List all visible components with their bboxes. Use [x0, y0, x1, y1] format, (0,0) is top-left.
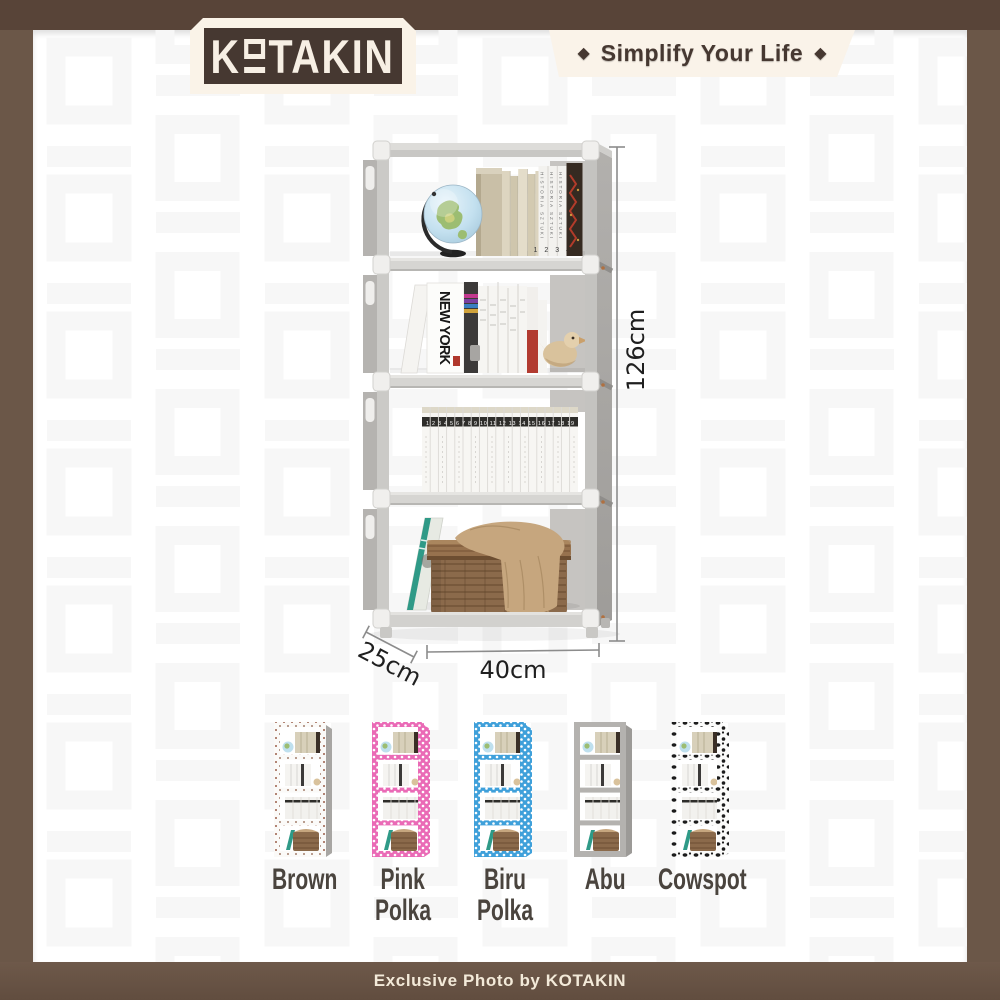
brand-logo-plate: KTAKIN: [190, 18, 416, 94]
logo-prefix: K: [211, 33, 241, 80]
variant-label-cowspot: Cowspot: [632, 864, 772, 895]
diamond-icon: ◆: [814, 46, 826, 62]
variant-thumb-pink-polka: [372, 720, 434, 860]
brand-logo-box: KTAKIN: [204, 28, 402, 84]
logo-suffix: TAKIN: [269, 33, 395, 80]
variant-thumb-cowspot: [671, 720, 733, 860]
product-banner: KTAKIN ◆ Simplify Your Life ◆: [0, 0, 1000, 1000]
tagline-text: Simplify Your Life: [601, 40, 803, 67]
footer-credit: Exclusive Photo by KOTAKIN: [374, 971, 626, 991]
variant-thumb-biru-polka: [474, 720, 536, 860]
logo-square-o-icon: [245, 38, 266, 74]
diamond-icon: ◆: [577, 46, 589, 62]
tagline-banner: ◆ Simplify Your Life ◆: [549, 30, 855, 77]
variant-thumb-abu: [574, 720, 636, 860]
brand-logo-text: KTAKIN: [211, 33, 395, 80]
variant-thumb-brown: [274, 720, 336, 860]
footer-bar: Exclusive Photo by KOTAKIN: [0, 962, 1000, 1000]
frame-top-bar: [0, 0, 1000, 30]
